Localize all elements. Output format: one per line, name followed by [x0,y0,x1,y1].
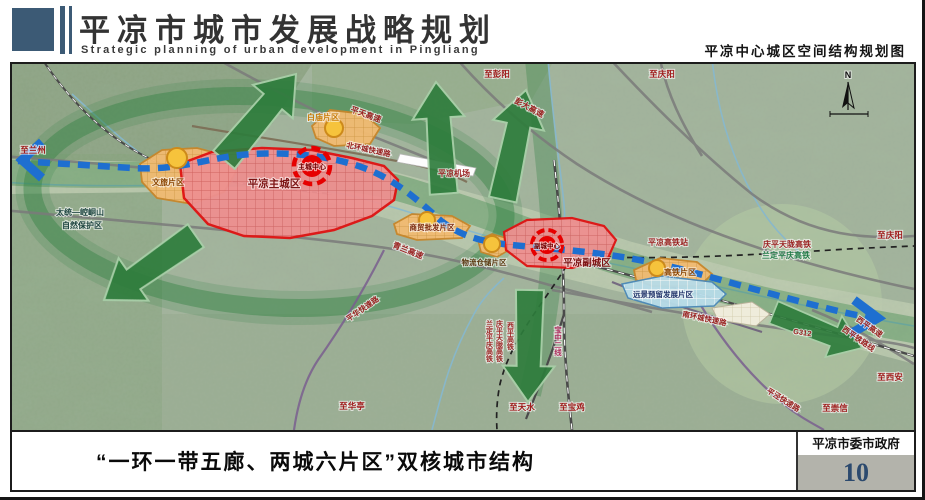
label-nature-reserve-2: 自然保护区 [62,220,102,230]
label-hsr-qptl: 庆平天陇高铁 [762,239,811,249]
planning-map: 至兰州太统—崆峒山自然保护区至彭阳至庆阳平天高速彭大高速北环城快速路白庙片区平凉… [12,64,914,430]
label-to-tianshui: 至天水 [509,402,535,412]
label-baozhong-line2: 宝中二线 [553,325,562,358]
label-to-pengyang: 至彭阳 [484,69,510,79]
label-main-center: 主城中心 [298,162,326,171]
label-nature-reserve-1: 太统—崆峒山 [55,207,104,217]
label-to-baoji: 至宝鸡 [559,402,585,412]
label-sub-center: 副城中心 [534,241,561,250]
label-hsr-ldpq: 兰定平庆高铁 [762,250,810,260]
label-logistics-district: 物流仓储片区 [462,257,507,267]
page-subtitle: Strategic planning of urban development … [81,44,480,56]
label-xiping-hsr-vert: 西平高铁 [507,322,515,351]
label-to-chongxin: 至崇信 [822,403,848,413]
node-gaotie [649,260,665,276]
label-to-qingyang-right: 至庆阳 [877,230,903,240]
node-logistics [484,236,500,252]
label-reserve-district: 远景预留发展片区 [633,289,693,299]
label-wenlv-district: 文旅片区 [152,177,184,187]
node-wenlv [167,148,187,168]
sheet-title: 平凉中心城区空间结构规划图 [705,40,907,60]
gov-box: 平凉市委市政府 10 [796,432,914,490]
page: 平凉市城市发展战略规划 Strategic planning of urban … [0,0,925,500]
caption-bar: “一环一带五廊、两城六片区”双核城市结构 平凉市委市政府 10 [12,430,914,490]
logo-square [12,8,54,51]
structure-caption: “一环一带五廊、两城六片区”双核城市结构 [96,446,535,476]
label-to-lanzhou: 至兰州 [20,145,46,155]
label-to-xian: 至西安 [877,372,903,382]
label-airport: 平凉机场 [438,168,470,178]
label-sub-city: 平凉副城区 [563,257,611,269]
label-hsr-station: 平凉高铁站 [648,237,688,247]
label-gaotie-district: 高铁片区 [664,267,696,277]
map-frame: 至兰州太统—崆峒山自然保护区至彭阳至庆阳平天高速彭大高速北环城快速路白庙片区平凉… [10,62,916,492]
label-trade-district: 商贸批发片区 [410,222,455,232]
page-number: 10 [798,455,914,490]
compass-n-label: N [845,70,852,80]
label-main-city: 平凉主城区 [248,177,301,190]
logo-bar [69,6,72,54]
label-to-qingyang-top: 至庆阳 [649,69,675,79]
agency-label: 平凉市委市政府 [798,432,914,455]
logo-bar [60,6,65,54]
label-to-huating: 至华亭 [339,401,365,411]
label-baimiao-district: 白庙片区 [307,112,339,122]
